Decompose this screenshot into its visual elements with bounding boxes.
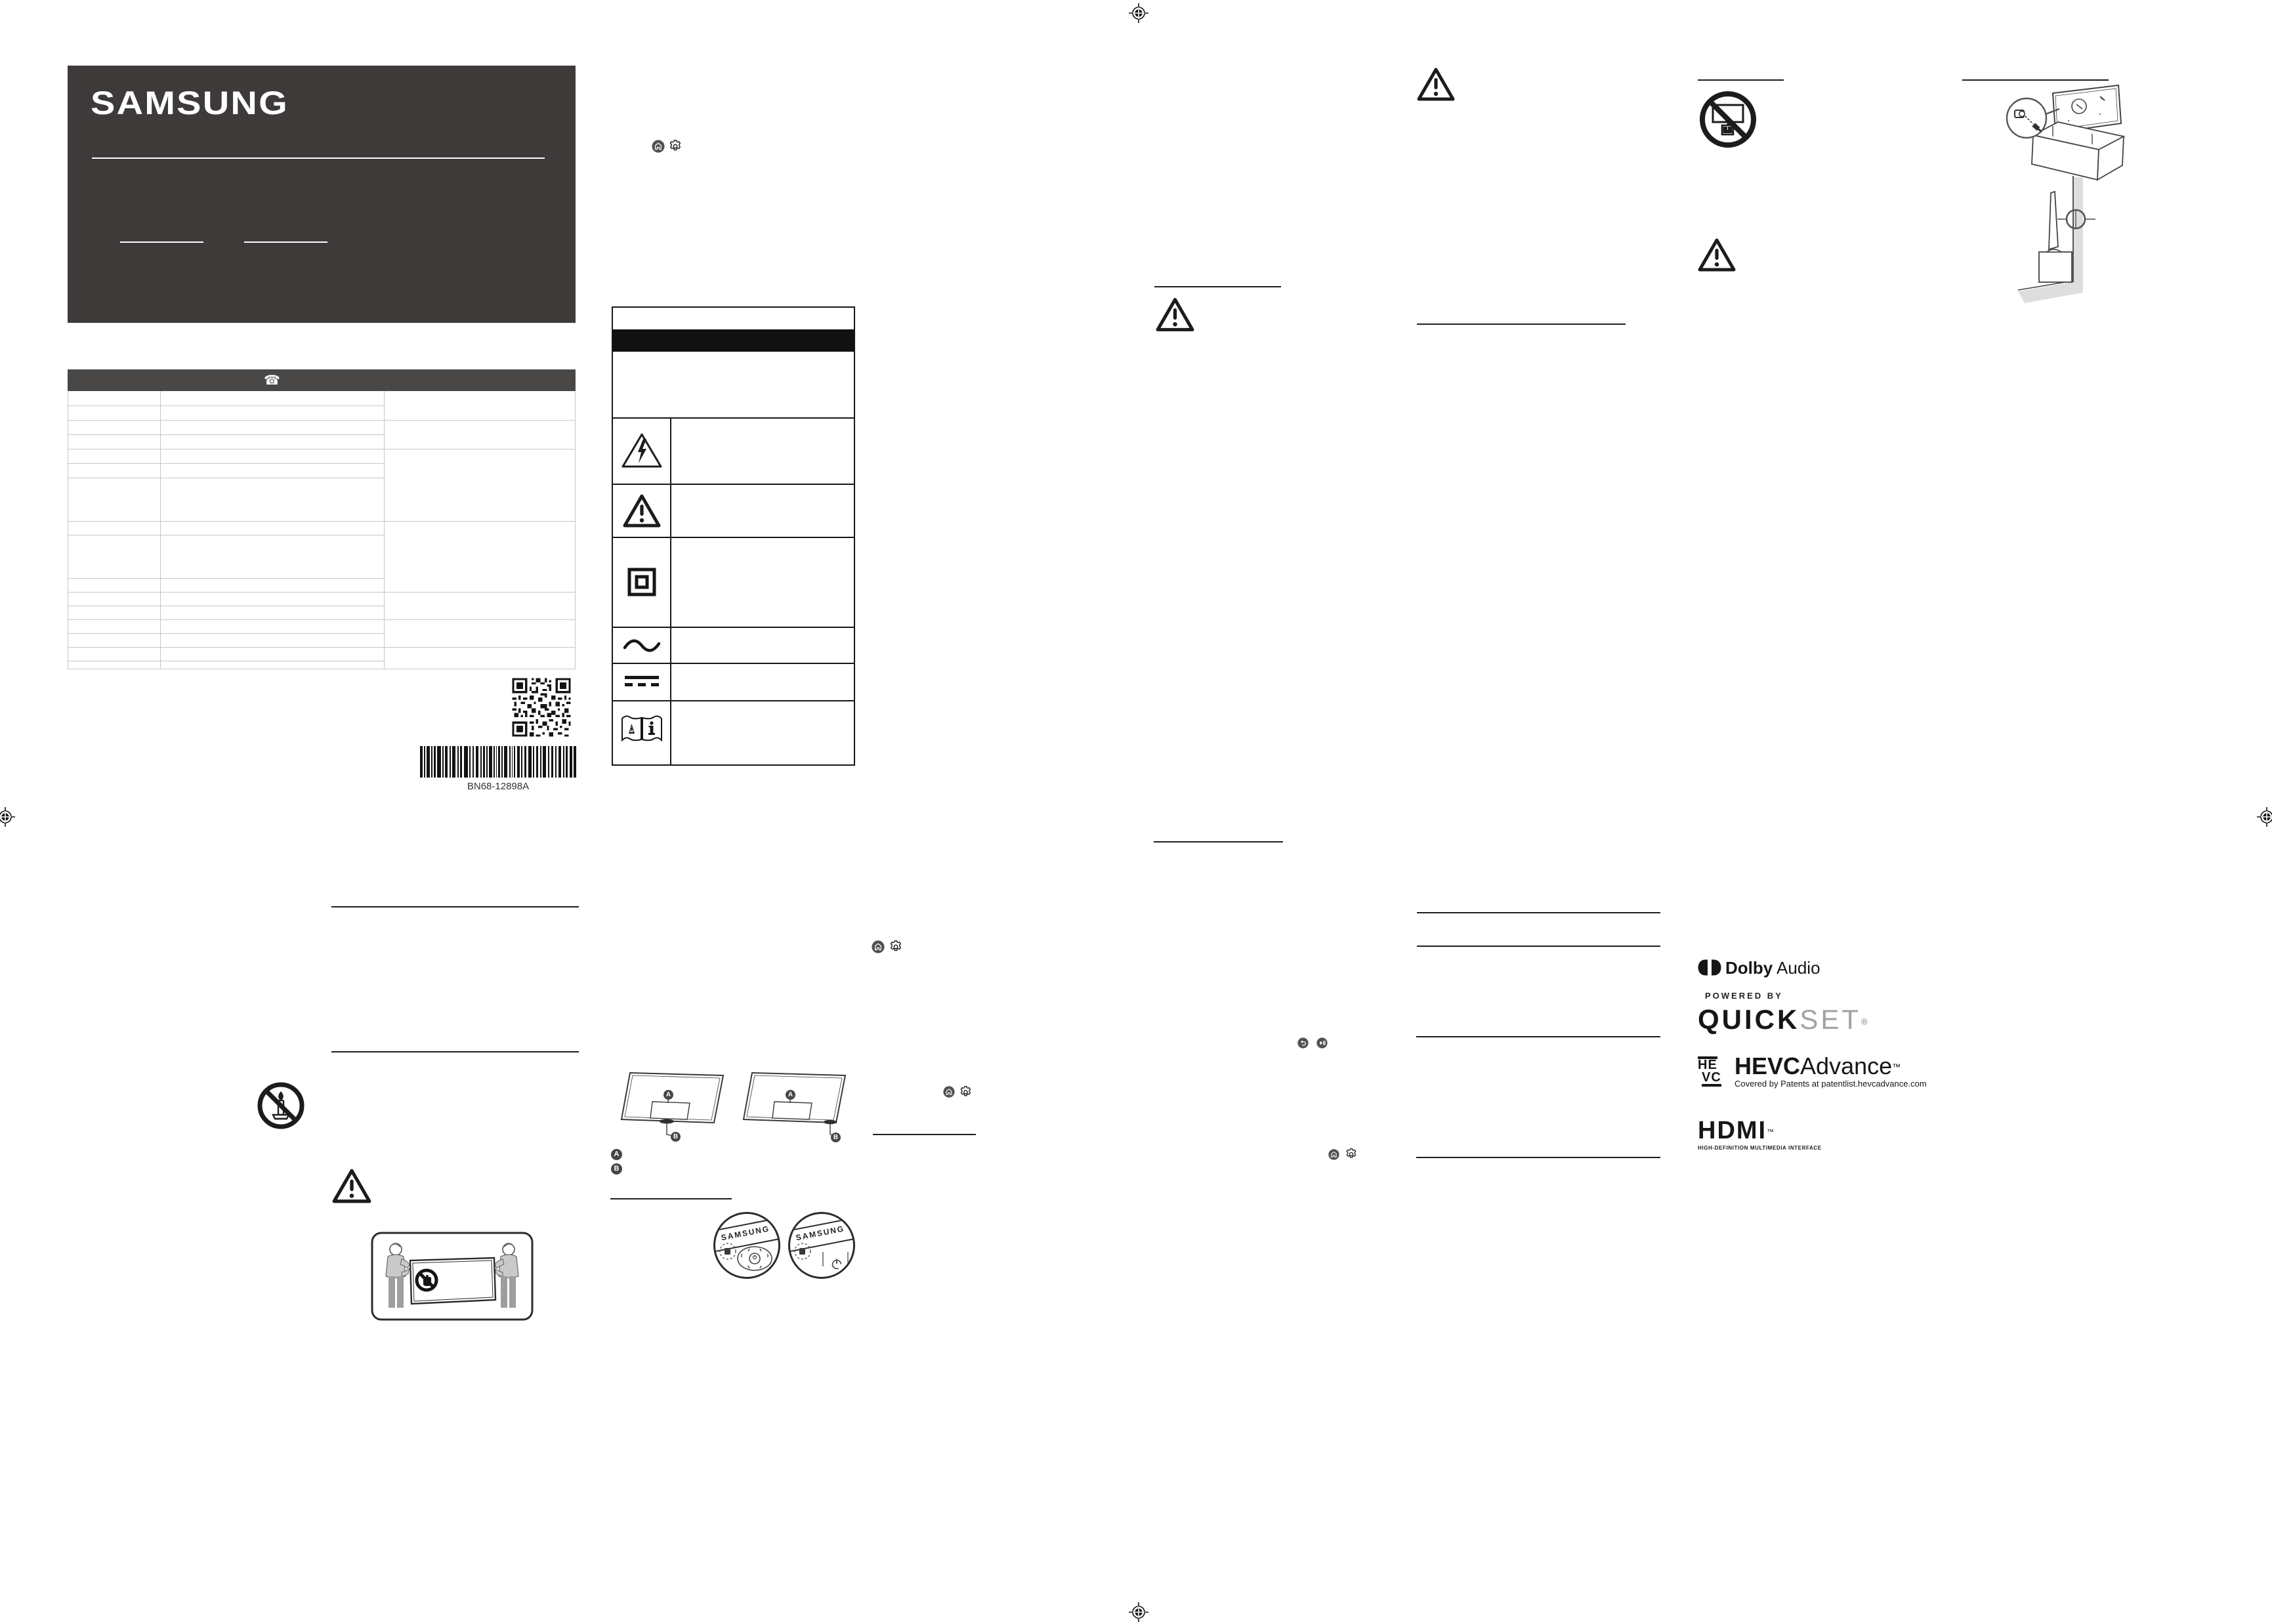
- controller-inset-button: SAMSUNG: [788, 1212, 855, 1279]
- section-rule: [610, 1198, 732, 1199]
- quickset-logo: QUICKSET®: [1698, 1004, 1868, 1035]
- quickset-set: SET: [1799, 1004, 1861, 1035]
- manual-page: SAMSUNG ☎: [0, 0, 2272, 1624]
- hevc-caption: Covered by Patents at patentlist.hevcadv…: [1735, 1079, 1927, 1089]
- callout-a: A: [663, 1090, 673, 1100]
- dolby-name: Dolby: [1725, 958, 1773, 978]
- section-rule: [1416, 1036, 1660, 1037]
- no-candle-icon: [257, 1079, 305, 1132]
- registration-mark: [0, 806, 16, 827]
- contact-table-header: ☎: [68, 369, 576, 391]
- section-rule: [1417, 323, 1626, 325]
- warning-triangle-icon: [1155, 297, 1195, 333]
- wall-mount-illustration: [2018, 176, 2110, 304]
- callout-b: B: [671, 1132, 681, 1142]
- legend-a: A: [611, 1149, 622, 1160]
- hdmi-name: HDMI: [1698, 1117, 1767, 1144]
- registration-mark: [1128, 1602, 1149, 1623]
- high-voltage-symbol: [621, 432, 663, 469]
- registration-mark: [2256, 806, 2272, 827]
- class-ii-symbol: [627, 568, 656, 596]
- stand-assembly-diagram: [610, 1066, 860, 1148]
- hevc-tm: ™: [1892, 1062, 1901, 1072]
- no-unstable-surface-icon: [1698, 89, 1757, 150]
- two-person-carry-illustration: [371, 1232, 534, 1321]
- home-icon: [1328, 1149, 1339, 1160]
- hdmi-caption: HIGH-DEFINITION MULTIMEDIA INTERFACE: [1698, 1145, 1822, 1151]
- symbols-col-divider: [670, 417, 671, 764]
- home-icon: [943, 1086, 955, 1098]
- dc-voltage-symbol: [623, 674, 660, 688]
- phone-icon: ☎: [160, 372, 384, 388]
- cover-panel: SAMSUNG: [68, 66, 576, 323]
- hevc-glyph-bottom: VC: [1702, 1072, 1721, 1087]
- return-icon: [1297, 1037, 1309, 1049]
- callout-b: B: [831, 1133, 841, 1142]
- controller-inset-jog: SAMSUNG: [713, 1212, 780, 1279]
- gear-icon: [959, 1085, 973, 1099]
- symbols-table-header-bar: [613, 329, 854, 352]
- section-rule: [873, 1134, 976, 1135]
- no-touch-icon: [417, 1270, 436, 1290]
- caution-symbol: [622, 493, 662, 529]
- dolby-type: Audio: [1777, 958, 1820, 978]
- packaging-assembly-illustration: [1995, 84, 2139, 189]
- section-rule: [1417, 912, 1660, 913]
- section-rule: [1417, 946, 1660, 947]
- cover-divider: [92, 157, 545, 159]
- section-rule: [1962, 79, 2109, 81]
- jog-controller-icon: [735, 1244, 774, 1274]
- section-rule: [331, 906, 579, 907]
- dolby-icon: [1698, 959, 1721, 976]
- hdmi-logo: HDMI™ HIGH-DEFINITION MULTIMEDIA INTERFA…: [1698, 1117, 1822, 1151]
- section-rule: [1154, 286, 1281, 287]
- legend-b: B: [611, 1163, 622, 1175]
- hevc-name-light: Advance: [1800, 1052, 1892, 1079]
- play-pause-icon: [1316, 1037, 1328, 1049]
- gear-icon: [1345, 1148, 1358, 1161]
- cover-underline-2: [244, 241, 327, 243]
- warning-triangle-icon: [1416, 66, 1456, 103]
- warning-triangle-icon: [331, 1167, 372, 1205]
- quickset-powered-by: POWERED BY: [1705, 991, 1783, 1001]
- samsung-logo: SAMSUNG: [91, 84, 289, 122]
- hevc-name-bold: HEVC: [1735, 1052, 1800, 1079]
- ac-voltage-symbol: [622, 638, 662, 654]
- section-rule: [331, 1051, 579, 1052]
- power-button-icon: [815, 1247, 852, 1276]
- qr-code: [510, 675, 573, 740]
- table-col-divider: [384, 391, 385, 669]
- gear-icon: [889, 940, 903, 954]
- hevc-glyph-top: HE: [1698, 1056, 1717, 1072]
- barcode: [420, 746, 576, 778]
- warning-triangle-icon: [1697, 237, 1736, 274]
- section-rule: [1154, 841, 1283, 843]
- cover-underline-1: [120, 241, 203, 243]
- section-rule: [1416, 1157, 1660, 1158]
- refer-to-manual-symbol: [620, 713, 664, 743]
- section-rule: [1698, 79, 1784, 81]
- part-number: BN68-12898A: [420, 781, 576, 792]
- hdmi-tm: ™: [1767, 1129, 1774, 1136]
- quickset-reg: ®: [1861, 1017, 1868, 1027]
- callout-a: A: [786, 1090, 795, 1100]
- ir-sensor-icon: [718, 1241, 738, 1261]
- ir-sensor-icon: [793, 1241, 812, 1261]
- table-col-divider: [160, 391, 161, 669]
- gear-icon: [668, 139, 683, 154]
- contact-table: ☎: [68, 369, 576, 669]
- quickset-quick: QUICK: [1698, 1004, 1799, 1035]
- home-icon: [872, 940, 885, 953]
- registration-mark: [1128, 3, 1149, 24]
- safety-symbols-table: [612, 306, 855, 766]
- home-icon: [652, 140, 665, 153]
